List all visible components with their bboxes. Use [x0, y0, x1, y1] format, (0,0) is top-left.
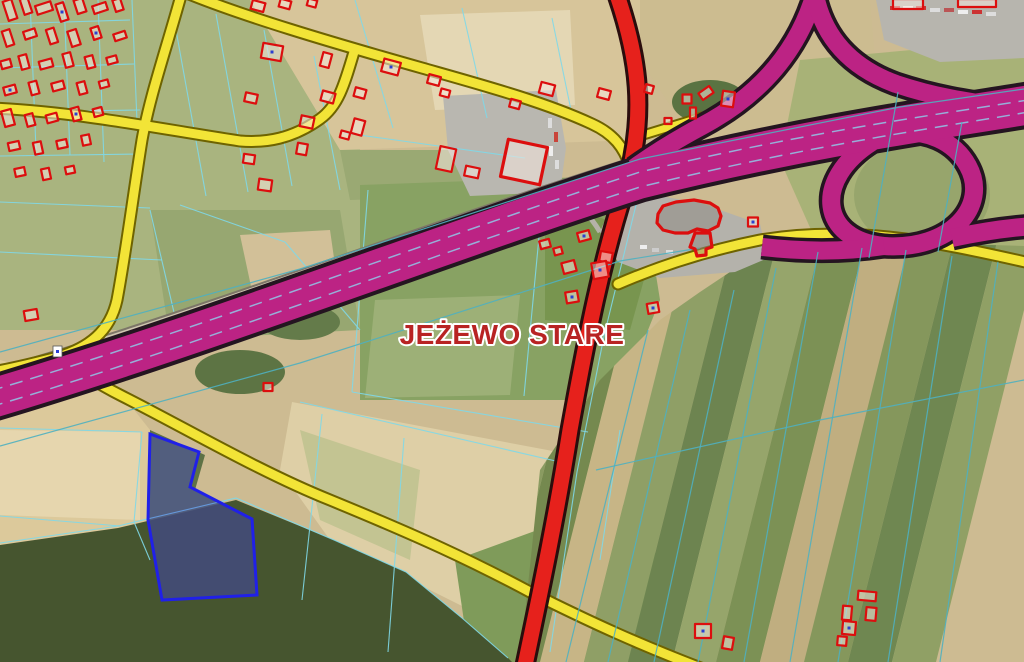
place-label: JEŻEWO STARE [400, 319, 625, 350]
map-canvas[interactable]: JEŻEWO STARE [0, 0, 1024, 662]
road-marker-icon [53, 346, 62, 357]
map-viewport[interactable]: JEŻEWO STARE [0, 0, 1024, 662]
